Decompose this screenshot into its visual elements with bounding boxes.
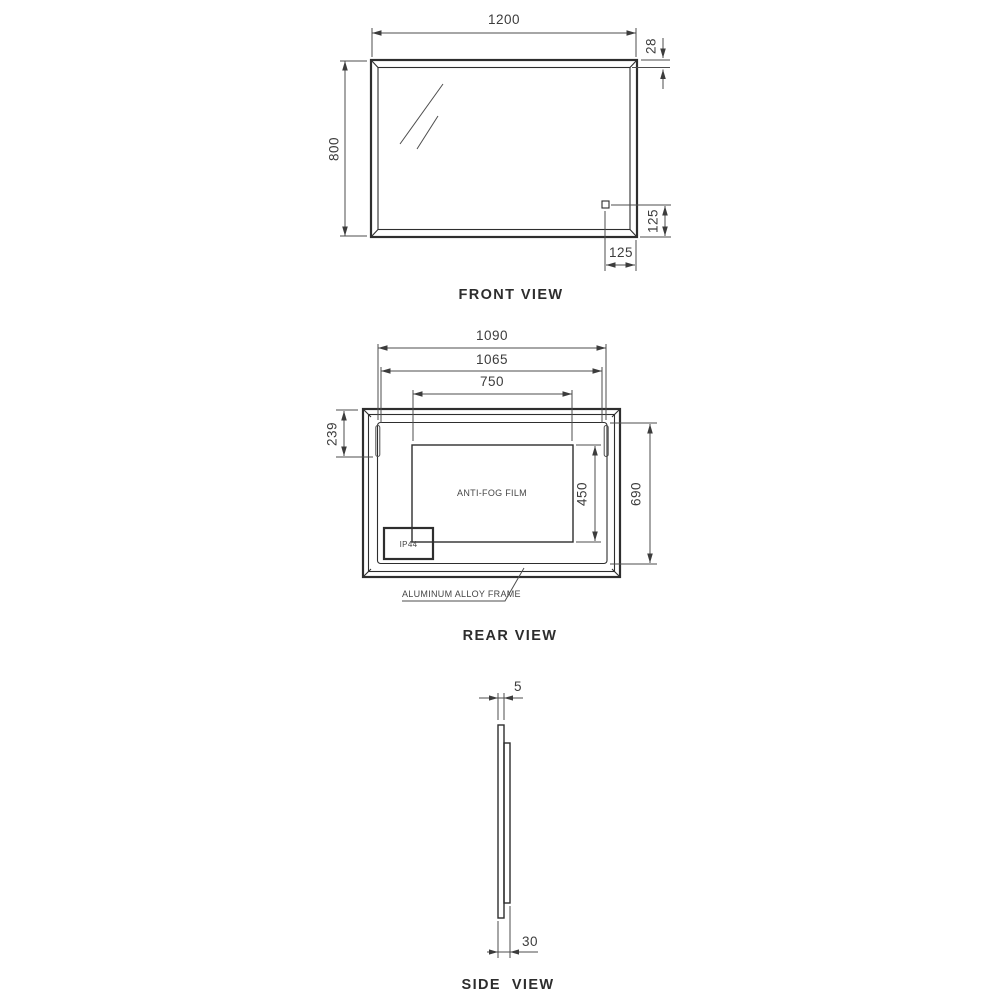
film-width-label: 750 [480, 374, 504, 389]
anti-fog-film-label: ANTI-FOG FILM [457, 488, 527, 498]
dimension-glass-thickness: 5 [479, 679, 523, 720]
dimension-top-offset: 239 [325, 410, 373, 457]
anti-fog-film: ANTI-FOG FILM [412, 445, 573, 542]
dimension-film-width: 750 [413, 374, 572, 441]
side-view: 5 30 SIDE VIEW [462, 679, 555, 993]
frame-bevel-label: 28 [644, 38, 659, 54]
front-view-title: FRONT VIEW [458, 287, 563, 303]
rear-view: ANTI-FOG FILM IP44 1090 1065 750 239 [325, 328, 657, 644]
front-width-label: 1200 [488, 12, 520, 27]
dimension-film-height: 450 [575, 445, 601, 542]
glass-profile [498, 725, 504, 918]
top-offset-label: 239 [325, 422, 340, 446]
frame-note-label: ALUMINUM ALLOY FRAME [402, 589, 521, 599]
front-height-label: 800 [327, 137, 342, 161]
keyhole-hanger-right [604, 426, 608, 457]
inner-width-label: 1065 [476, 352, 508, 367]
frame-profile [504, 743, 510, 903]
touch-sensor-square [602, 201, 609, 208]
technical-drawing: 1200 800 28 125 125 FRONT VIEW [0, 0, 1000, 1000]
dimension-sensor-vertical: 125 [611, 205, 671, 237]
sensor-vertical-label: 125 [646, 209, 661, 233]
side-view-outline [498, 725, 510, 918]
front-view: 1200 800 28 125 125 FRONT VIEW [327, 12, 671, 303]
mirror-dimension-drawing-page: 1200 800 28 125 125 FRONT VIEW [0, 0, 1000, 1000]
front-view-mirror-outline [371, 60, 637, 237]
backplate-height-label: 690 [629, 482, 644, 506]
dimension-backplate-height: 690 [610, 423, 657, 564]
frame-callout: ALUMINUM ALLOY FRAME [402, 568, 524, 601]
film-height-label: 450 [575, 482, 590, 506]
depth-label: 30 [522, 934, 538, 949]
dimension-front-height: 800 [327, 61, 367, 236]
dimension-front-width: 1200 [372, 12, 636, 57]
junction-box: IP44 [384, 528, 433, 559]
sensor-horizontal-label: 125 [609, 245, 633, 260]
dimension-sensor-horizontal: 125 [605, 211, 636, 271]
glass-thickness-label: 5 [514, 679, 522, 694]
glass-reflection-lines [400, 84, 443, 149]
backplate-width-label: 1090 [476, 328, 508, 343]
frame-bevel-corners [371, 60, 637, 237]
side-view-title: SIDE VIEW [462, 977, 555, 993]
rear-view-title: REAR VIEW [463, 628, 558, 644]
dimension-depth: 30 [487, 906, 538, 958]
ip-rating-label: IP44 [400, 540, 418, 549]
